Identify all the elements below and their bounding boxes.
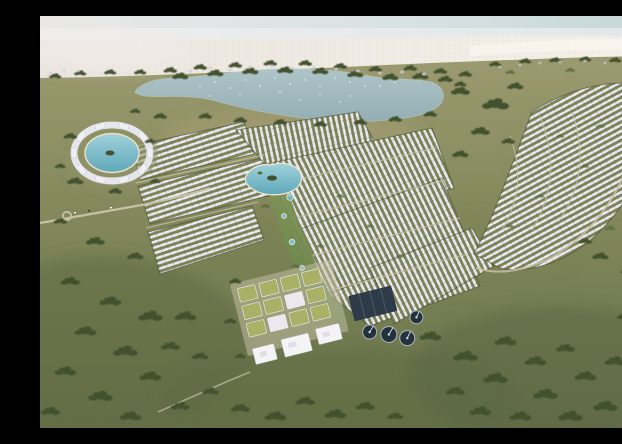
scene-canvas <box>40 16 622 428</box>
aerial-render <box>40 16 622 428</box>
lagoon-resort <box>66 120 158 186</box>
resort-island <box>106 151 115 156</box>
